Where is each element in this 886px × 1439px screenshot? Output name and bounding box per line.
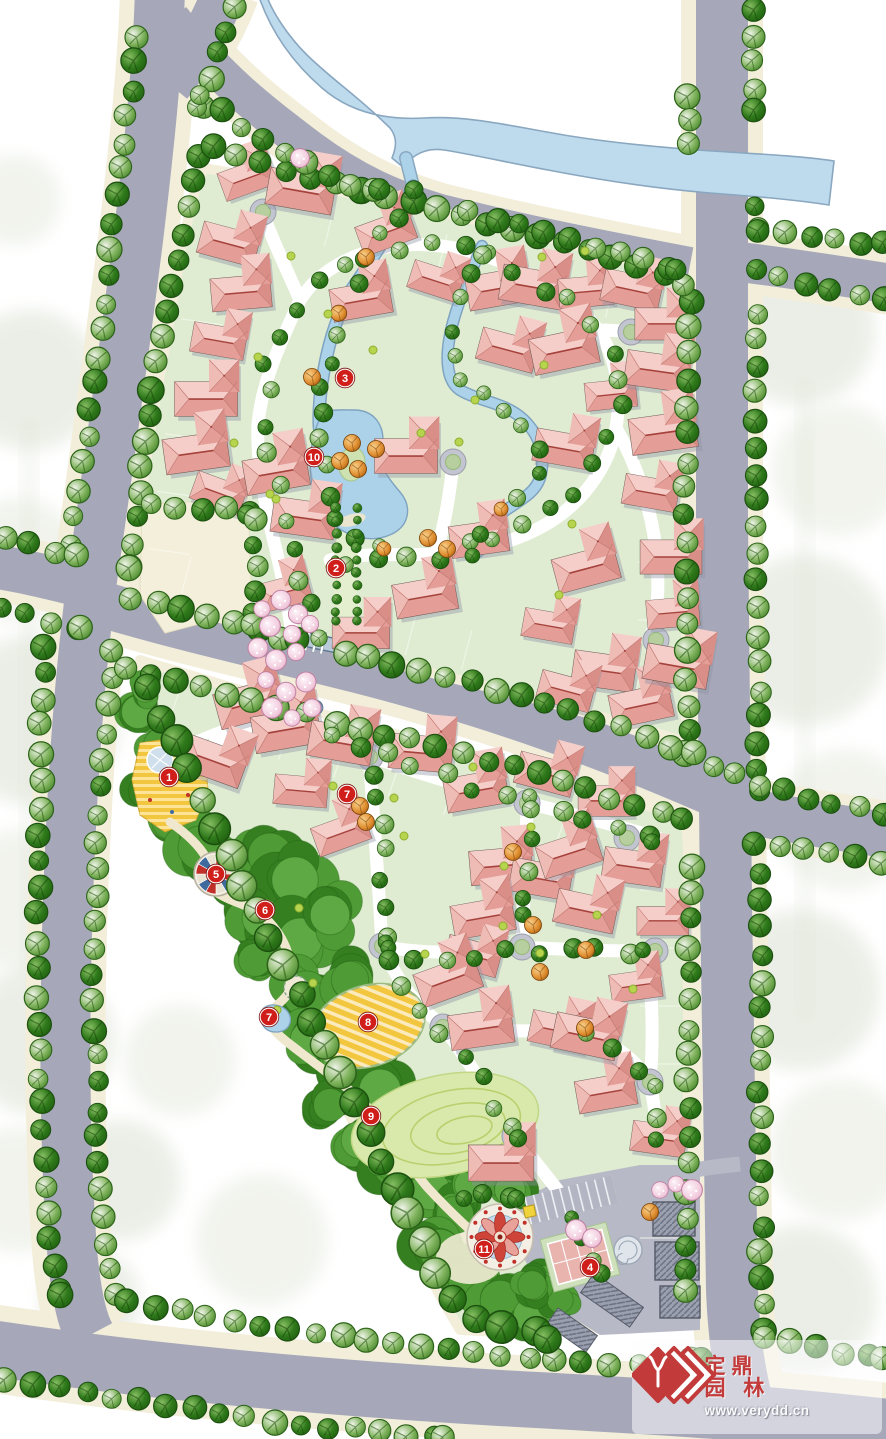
tree-icon	[392, 977, 411, 996]
tree-icon	[527, 761, 551, 785]
map-marker-2: 2	[326, 558, 346, 578]
tree-icon	[679, 1021, 699, 1041]
tree-icon	[748, 888, 771, 911]
tree-icon	[520, 863, 538, 881]
shrub-icon	[369, 346, 377, 354]
mandala-plaza-feature-11	[467, 1204, 533, 1270]
svg-text:5: 5	[213, 869, 219, 881]
svg-text:8: 8	[365, 1017, 371, 1029]
tree-icon	[499, 787, 517, 805]
tree-icon	[141, 494, 161, 514]
tree-icon	[752, 1026, 774, 1048]
tree-icon	[681, 908, 701, 928]
tree-icon	[190, 788, 215, 813]
tree-icon	[558, 227, 580, 249]
tree-icon	[45, 542, 66, 563]
tree-icon	[353, 529, 363, 539]
tree-icon	[373, 226, 388, 241]
tree-icon	[379, 652, 405, 678]
tree-icon	[412, 1003, 427, 1018]
tree-icon	[453, 742, 475, 764]
tree-icon	[850, 233, 873, 256]
site-plan-canvas: 12345677891011 定鼎 园 林 www.verydd.cn	[0, 0, 886, 1439]
tree-icon	[678, 696, 700, 718]
tree-icon	[577, 1020, 594, 1037]
svg-text:2: 2	[333, 563, 339, 575]
tree-icon	[742, 98, 766, 122]
tree-icon	[225, 144, 247, 166]
tree-icon	[303, 699, 321, 717]
tree-icon	[37, 1201, 61, 1225]
tree-icon	[843, 844, 867, 868]
shrub-icon	[536, 949, 544, 957]
tree-icon	[247, 556, 268, 577]
tree-icon	[770, 836, 790, 856]
tree-icon	[466, 951, 482, 967]
tree-icon	[423, 734, 446, 757]
tree-icon	[537, 283, 555, 301]
tree-icon	[307, 1324, 326, 1343]
tree-icon	[635, 942, 651, 958]
tree-icon	[84, 910, 105, 931]
tree-icon	[291, 149, 310, 168]
tree-icon	[773, 778, 795, 800]
tree-icon	[318, 1419, 339, 1439]
tree-icon	[90, 749, 113, 772]
tree-icon	[607, 346, 623, 362]
tree-icon	[272, 476, 289, 493]
tree-icon	[195, 604, 219, 628]
tree-icon	[439, 541, 456, 558]
tree-icon	[532, 964, 549, 981]
tree-icon	[746, 328, 766, 348]
tree-icon	[249, 151, 271, 173]
tree-icon	[679, 109, 701, 131]
shrub-icon	[417, 429, 425, 437]
shrub-icon	[471, 396, 479, 404]
master-plan-drawing: 12345677891011	[0, 0, 886, 1439]
tree-icon	[401, 757, 418, 774]
tree-icon	[409, 1227, 440, 1258]
map-marker-5: 5	[206, 864, 226, 884]
tree-icon	[172, 1299, 193, 1320]
svg-text:1: 1	[166, 772, 172, 784]
tree-icon	[439, 764, 458, 783]
tree-icon	[749, 1186, 768, 1205]
tree-icon	[614, 395, 632, 413]
tree-icon	[258, 672, 275, 689]
shrub-icon	[287, 252, 295, 260]
tree-icon	[792, 838, 813, 859]
tree-icon	[522, 801, 539, 818]
tree-icon	[78, 1382, 98, 1402]
tree-icon	[472, 526, 488, 542]
tree-icon	[239, 688, 263, 712]
tree-icon	[750, 1160, 773, 1183]
tree-icon	[68, 615, 92, 639]
tree-icon	[742, 832, 765, 855]
tree-icon	[749, 775, 770, 796]
tree-icon	[819, 843, 839, 863]
tree-icon	[678, 1208, 699, 1229]
shrub-icon	[527, 823, 535, 831]
tree-icon	[397, 547, 416, 566]
tree-icon	[332, 529, 342, 539]
tree-icon	[674, 559, 699, 584]
tree-icon	[26, 932, 50, 956]
tree-icon	[84, 939, 105, 960]
tree-icon	[81, 964, 102, 985]
tree-icon	[88, 806, 107, 825]
tree-icon	[169, 250, 189, 270]
tree-icon	[399, 728, 419, 748]
tree-icon	[210, 98, 234, 122]
tree-icon	[755, 1294, 775, 1314]
tree-icon	[678, 454, 698, 474]
tree-icon	[24, 900, 47, 923]
tree-icon	[67, 480, 90, 503]
tree-icon	[17, 531, 39, 553]
tree-icon	[34, 1147, 59, 1172]
tree-icon	[332, 517, 341, 526]
tree-icon	[773, 220, 796, 243]
tree-icon	[71, 450, 95, 474]
tree-icon	[505, 755, 524, 774]
tree-icon	[88, 1103, 107, 1122]
tree-icon	[334, 641, 359, 666]
tree-icon	[332, 453, 349, 470]
tree-icon	[30, 1089, 55, 1114]
tree-icon	[584, 455, 601, 472]
tree-icon	[121, 48, 146, 73]
tree-icon	[463, 1342, 484, 1363]
tree-icon	[505, 844, 522, 861]
tree-icon	[675, 396, 698, 419]
tree-icon	[582, 317, 598, 333]
tree-icon	[665, 259, 686, 280]
tree-icon	[554, 801, 574, 821]
tree-icon	[354, 1328, 378, 1352]
tree-icon	[215, 683, 239, 707]
tree-icon	[515, 890, 530, 905]
tree-icon	[101, 214, 122, 235]
tree-icon	[86, 347, 110, 371]
tree-icon	[325, 357, 339, 371]
tree-icon	[747, 1081, 768, 1102]
tree-icon	[105, 182, 129, 206]
tree-icon	[148, 591, 170, 613]
tree-icon	[574, 777, 595, 798]
tree-icon	[207, 42, 227, 62]
tree-icon	[64, 543, 88, 567]
tree-icon	[513, 418, 528, 433]
tree-icon	[24, 986, 48, 1010]
svg-text:7: 7	[344, 789, 350, 801]
tree-icon	[27, 711, 51, 735]
tree-icon	[747, 1239, 772, 1264]
tree-icon	[798, 789, 819, 810]
tree-icon	[524, 831, 540, 847]
tree-icon	[420, 1258, 450, 1288]
tree-icon	[679, 854, 704, 879]
tree-icon	[802, 227, 823, 248]
tree-icon	[351, 567, 361, 577]
tree-icon	[751, 1106, 774, 1129]
tree-icon	[681, 962, 701, 982]
tree-icon	[749, 914, 772, 937]
tree-icon	[262, 1410, 287, 1435]
shrub-icon	[499, 922, 507, 930]
tree-icon	[675, 84, 700, 109]
tree-icon	[369, 179, 390, 200]
tree-icon	[122, 534, 144, 556]
tree-icon	[746, 220, 769, 243]
tree-icon	[133, 428, 159, 454]
tree-icon	[632, 247, 654, 269]
tree-icon	[391, 1197, 423, 1229]
tree-icon	[91, 317, 115, 341]
tree-icon	[116, 555, 141, 580]
tree-icon	[484, 679, 509, 704]
tree-icon	[745, 465, 766, 486]
tree-icon	[742, 0, 765, 21]
tree-icon	[329, 327, 345, 343]
tree-icon	[566, 488, 581, 503]
tree-icon	[210, 1404, 229, 1423]
svg-text:10: 10	[308, 452, 320, 464]
tree-icon	[636, 725, 659, 748]
tree-icon	[490, 1346, 510, 1366]
tree-icon	[331, 608, 340, 617]
shrub-icon	[266, 490, 274, 498]
tree-icon	[409, 1334, 434, 1359]
tree-icon	[642, 1204, 659, 1221]
tree-icon	[438, 1338, 459, 1359]
tree-icon	[183, 1396, 207, 1420]
shrub-icon	[540, 361, 548, 369]
tree-icon	[232, 119, 250, 137]
tree-icon	[508, 1190, 525, 1207]
tree-icon	[31, 634, 56, 659]
tree-icon	[747, 596, 769, 618]
tree-icon	[751, 1050, 771, 1070]
tree-icon	[462, 265, 480, 283]
tree-icon	[353, 516, 361, 524]
tree-icon	[161, 725, 192, 756]
tree-icon	[356, 644, 380, 668]
tree-icon	[674, 668, 697, 691]
svg-text:11: 11	[478, 1244, 490, 1256]
tree-icon	[275, 1317, 299, 1341]
tree-icon	[314, 404, 332, 422]
tree-icon	[283, 625, 300, 642]
tree-icon	[368, 441, 385, 458]
tree-icon	[192, 499, 214, 521]
tree-icon	[215, 496, 238, 519]
tree-icon	[744, 568, 767, 591]
shrub-icon	[309, 979, 317, 987]
tree-icon	[453, 289, 468, 304]
tree-icon	[172, 224, 194, 246]
tree-icon	[86, 1151, 108, 1173]
tree-icon	[114, 104, 136, 126]
shrub-icon	[581, 247, 589, 255]
tree-icon	[271, 590, 291, 610]
tree-icon	[678, 1152, 699, 1173]
tree-icon	[279, 514, 294, 529]
tree-icon	[599, 789, 620, 810]
map-marker-3: 3	[335, 368, 355, 388]
tree-icon	[557, 699, 578, 720]
tree-icon	[319, 165, 340, 186]
tree-icon	[390, 209, 408, 227]
tree-icon	[15, 604, 34, 623]
tree-icon	[456, 1191, 472, 1207]
tree-icon	[676, 1041, 700, 1065]
map-marker-10: 10	[304, 447, 324, 467]
tree-icon	[333, 581, 341, 589]
tree-icon	[574, 811, 591, 828]
tree-icon	[128, 454, 152, 478]
tree-icon	[674, 1279, 698, 1303]
tree-icon	[445, 325, 459, 339]
tree-icon	[630, 1063, 647, 1080]
tree-icon	[676, 314, 701, 339]
tree-icon	[353, 596, 361, 604]
tree-icon	[224, 1310, 246, 1332]
tree-icon	[332, 594, 342, 604]
tree-icon	[266, 650, 287, 671]
tree-icon	[296, 672, 316, 692]
tree-icon	[353, 503, 362, 512]
tree-icon	[404, 950, 423, 969]
tree-icon	[509, 489, 526, 506]
map-marker-7: 7	[259, 1007, 279, 1027]
tree-icon	[603, 1039, 621, 1057]
tree-icon	[178, 196, 199, 217]
tree-icon	[227, 871, 257, 901]
spiral-pool	[614, 1236, 642, 1265]
tree-icon	[822, 795, 840, 813]
tree-icon	[743, 409, 767, 433]
tree-icon	[747, 260, 767, 280]
watermark: 定鼎 园 林 www.verydd.cn	[632, 1340, 882, 1434]
tree-icon	[624, 795, 645, 816]
tree-icon	[276, 682, 296, 702]
tree-icon	[510, 683, 534, 707]
tree-icon	[80, 988, 103, 1011]
tree-icon	[82, 1019, 107, 1044]
tree-icon	[163, 668, 188, 693]
shrub-icon	[500, 862, 508, 870]
tree-icon	[748, 305, 767, 324]
tree-icon	[679, 881, 703, 905]
tree-icon	[424, 235, 440, 251]
tree-icon	[609, 371, 627, 389]
tree-icon	[215, 22, 236, 43]
tree-icon	[310, 429, 328, 447]
tree-icon	[30, 1039, 52, 1061]
tree-icon	[420, 530, 437, 547]
tree-icon	[31, 1120, 51, 1140]
map-marker-6: 6	[255, 900, 275, 920]
tree-icon	[677, 340, 700, 363]
tree-icon	[457, 200, 477, 220]
tree-icon	[747, 543, 768, 564]
tree-icon	[377, 840, 394, 857]
tree-icon	[77, 398, 100, 421]
tree-icon	[825, 229, 844, 248]
tree-icon	[724, 763, 745, 784]
tree-icon	[377, 542, 391, 556]
tree-icon	[102, 1389, 121, 1408]
tree-icon	[258, 420, 273, 435]
tree-icon	[675, 1259, 696, 1280]
tree-icon	[156, 300, 179, 323]
tree-icon	[534, 1326, 562, 1354]
tree-icon	[223, 0, 246, 18]
tree-icon	[531, 441, 548, 458]
tree-icon	[570, 1351, 592, 1373]
tree-icon	[88, 1045, 107, 1064]
tree-icon	[368, 789, 384, 805]
tree-icon	[750, 864, 770, 884]
tree-icon	[647, 1109, 666, 1128]
tree-icon	[260, 616, 281, 637]
tree-icon	[263, 382, 279, 398]
tree-icon	[448, 349, 463, 364]
tree-icon	[49, 1375, 70, 1396]
tree-icon	[88, 1177, 112, 1201]
tree-icon	[747, 703, 771, 727]
tree-icon	[123, 81, 144, 102]
tree-icon	[439, 952, 455, 968]
west-branch-road	[0, 566, 92, 588]
svg-text:9: 9	[368, 1111, 374, 1123]
kiosk	[523, 1205, 536, 1218]
tree-icon	[41, 613, 62, 634]
shrub-icon	[629, 985, 637, 993]
tree-icon	[430, 1025, 448, 1043]
tree-icon	[244, 537, 261, 554]
tree-icon	[652, 1182, 669, 1199]
tree-icon	[751, 682, 772, 703]
ghost-tree	[197, 1175, 327, 1305]
map-marker-4: 4	[580, 1257, 600, 1277]
tree-icon	[194, 1305, 215, 1326]
map-marker-1: 1	[159, 767, 179, 787]
tree-icon	[742, 26, 765, 49]
tree-icon	[92, 1205, 115, 1228]
tree-icon	[97, 725, 116, 744]
shrub-icon	[538, 253, 546, 261]
tree-icon	[96, 691, 121, 716]
tree-icon	[741, 50, 762, 71]
tree-icon	[611, 715, 631, 735]
tree-icon	[473, 1185, 492, 1204]
tree-icon	[135, 674, 161, 700]
tree-icon	[682, 1180, 703, 1201]
tree-icon	[353, 581, 362, 590]
tree-icon	[677, 133, 699, 155]
tree-icon	[254, 924, 281, 951]
tree-icon	[304, 369, 321, 386]
tree-icon	[745, 438, 766, 459]
tree-icon	[311, 272, 328, 289]
tree-icon	[109, 156, 131, 178]
tree-icon	[352, 616, 361, 625]
tree-icon	[611, 820, 626, 835]
